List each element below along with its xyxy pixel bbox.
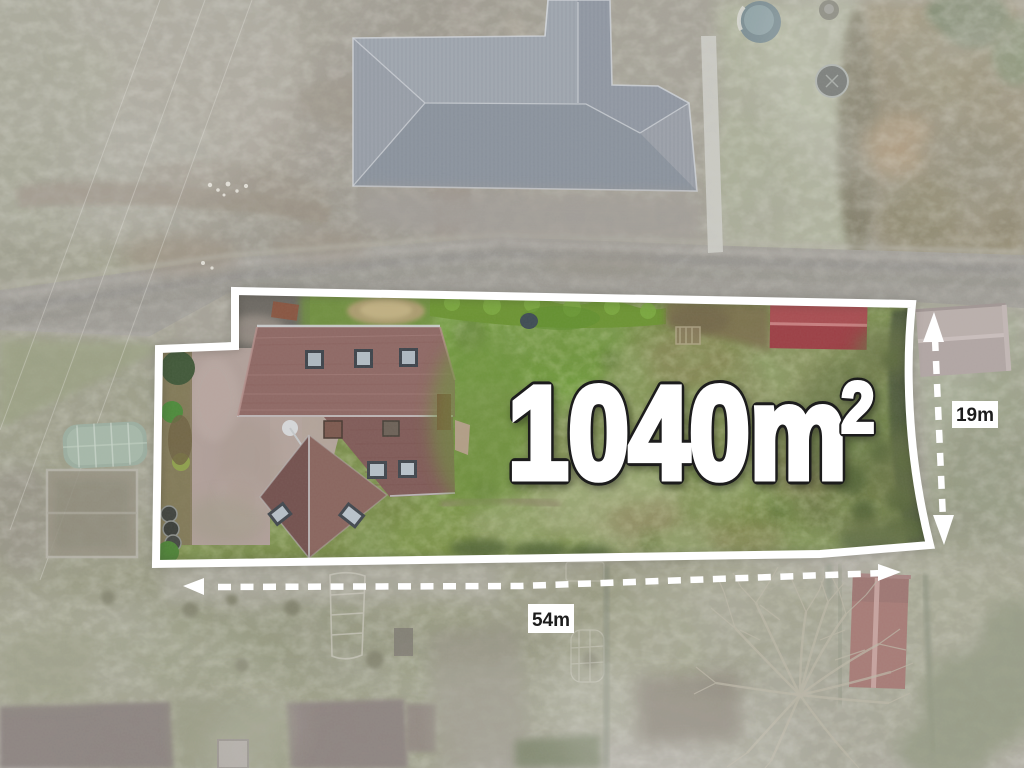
svg-text:54m: 54m [532, 610, 570, 631]
svg-text:2: 2 [841, 367, 875, 447]
svg-text:19m: 19m [956, 405, 994, 426]
svg-text:1040m: 1040m [508, 359, 847, 506]
